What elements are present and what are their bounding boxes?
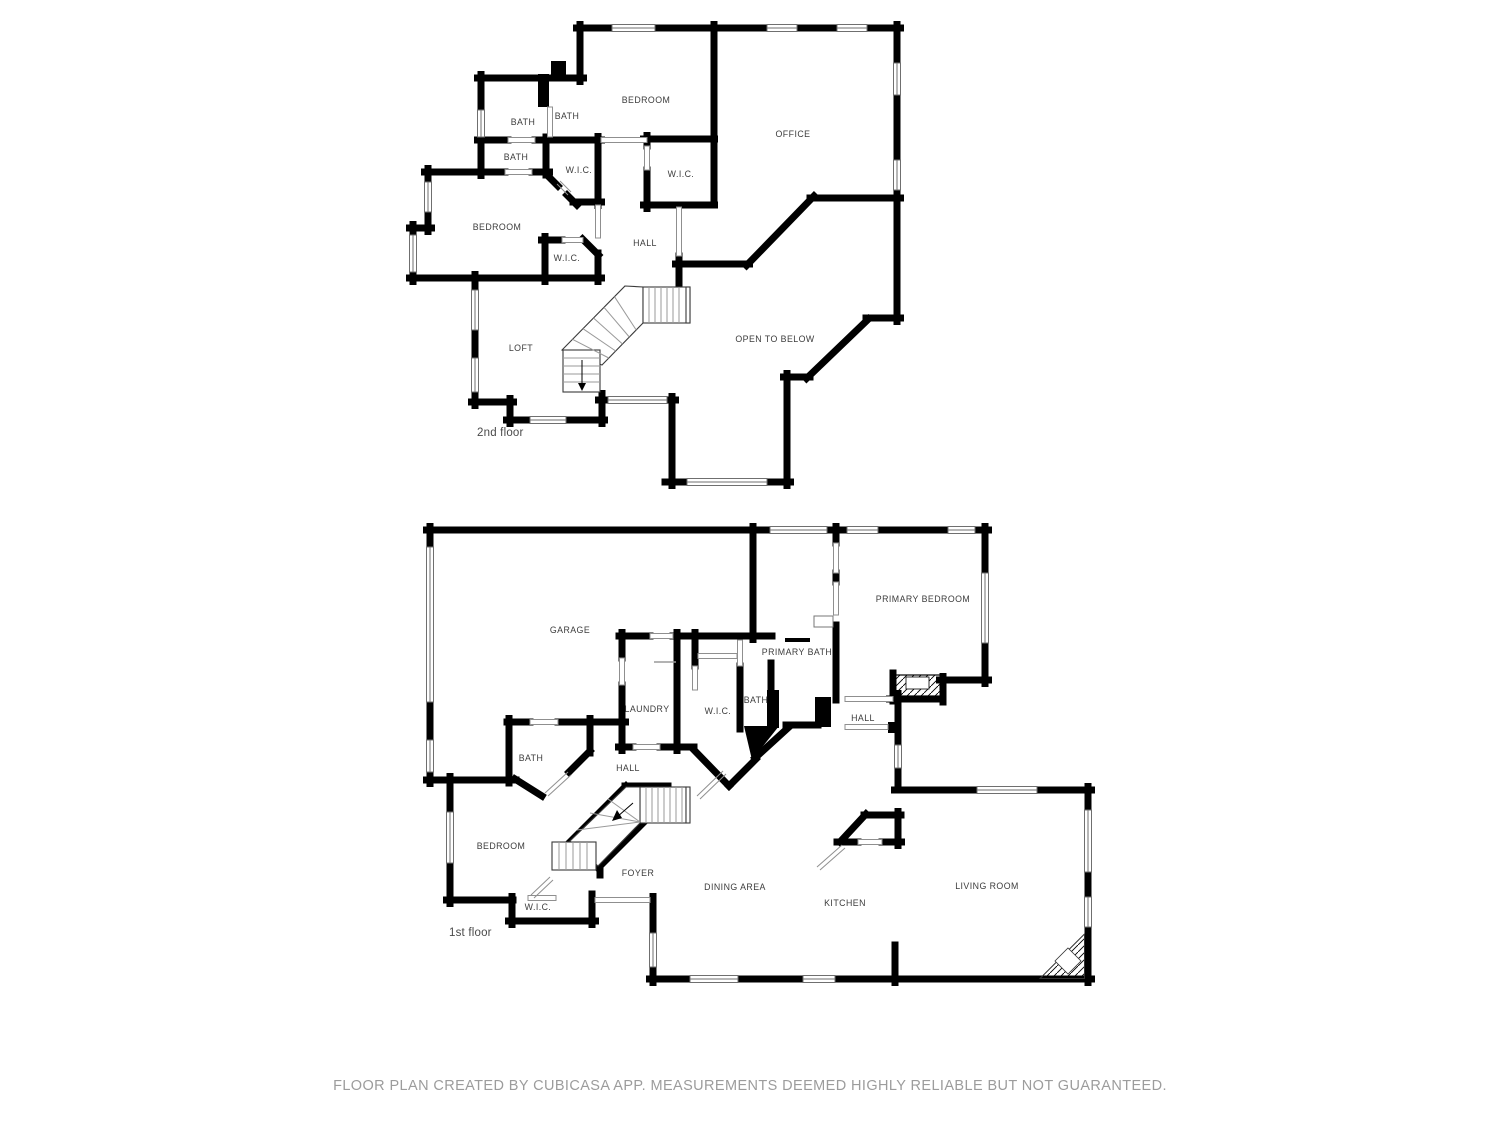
primary-bedroom-fireplace (895, 675, 941, 696)
second-floor-walls (410, 25, 901, 486)
second-floor-doors (505, 107, 682, 256)
room-label-foyer: FOYER (622, 868, 655, 878)
room-label-bedroom-mid: BEDROOM (473, 222, 522, 232)
room-label-bath-left: BATH (519, 753, 544, 763)
room-label-office: OFFICE (776, 129, 811, 139)
room-label-primary-bedroom: PRIMARY BEDROOM (876, 594, 970, 604)
room-label-bedroom-top: BEDROOM (622, 95, 671, 105)
room-label-wic-center: W.I.C. (705, 706, 732, 716)
room-label-bedroom-1f: BEDROOM (477, 841, 526, 851)
room-label-laundry: LAUNDRY (624, 704, 669, 714)
room-label-bath1: BATH (511, 117, 536, 127)
room-label-wic3: W.I.C. (554, 253, 581, 263)
room-label-loft: LOFT (509, 343, 533, 353)
room-label-bath2: BATH (555, 111, 580, 121)
room-label-bath3: BATH (504, 152, 529, 162)
footer-disclaimer: FLOOR PLAN CREATED BY CUBICASA APP. MEAS… (333, 1078, 1167, 1094)
room-label-garage: GARAGE (550, 625, 590, 635)
second-floor-plan: BATH BATH BATH BEDROOM OFFICE W.I.C. W.I… (410, 25, 901, 486)
floor-label-2nd: 2nd floor (477, 427, 524, 439)
room-label-dining: DINING AREA (704, 882, 766, 892)
room-label-kitchen: KITCHEN (824, 898, 866, 908)
first-floor-plan: GARAGE PRIMARY BEDROOM PRIMARY BATH LAUN… (427, 527, 1092, 983)
floor-plan-canvas: BATH BATH BATH BEDROOM OFFICE W.I.C. W.I… (0, 0, 1500, 1125)
room-label-wic-lower: W.I.C. (525, 902, 552, 912)
room-label-open-to-below: OPEN TO BELOW (735, 334, 815, 344)
first-floor-fireplaces (895, 675, 1085, 979)
room-label-living: LIVING ROOM (955, 881, 1019, 891)
floor-plan-page: BATH BATH BATH BEDROOM OFFICE W.I.C. W.I… (0, 0, 1500, 1125)
room-label-primary-bath: PRIMARY BATH (762, 647, 832, 657)
first-floor-stairs (552, 787, 690, 870)
room-label-bath-center: BATH (744, 695, 769, 705)
room-label-wic1: W.I.C. (566, 165, 593, 175)
room-label-hall-right: HALL (851, 713, 875, 723)
first-floor-labels: GARAGE PRIMARY BEDROOM PRIMARY BATH LAUN… (449, 594, 1019, 939)
room-label-wic2: W.I.C. (668, 169, 695, 179)
room-label-hall-2f: HALL (633, 238, 657, 248)
room-label-hall-left: HALL (616, 763, 640, 773)
floor-label-1st: 1st floor (449, 927, 492, 939)
second-floor-stairs (562, 286, 690, 392)
living-room-corner-fireplace (1040, 934, 1085, 979)
